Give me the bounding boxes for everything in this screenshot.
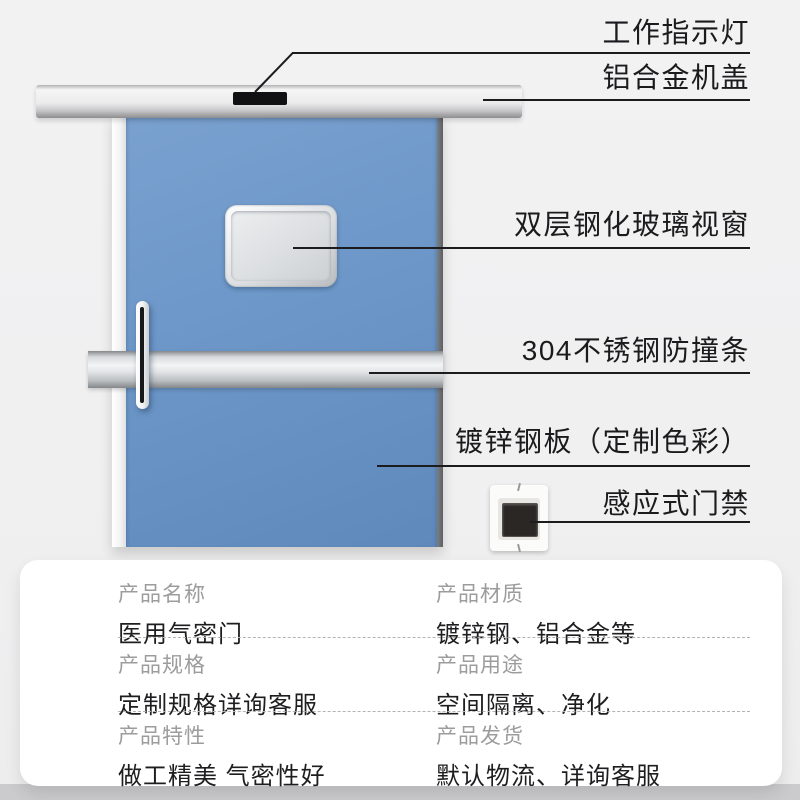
door-handle [136, 301, 149, 409]
spec-cell-product-feature: 产品特性 做工精美 气密性好 [20, 712, 436, 783]
access-device-wire-bottom [517, 544, 521, 552]
window-glass [231, 211, 331, 281]
door-face-steel-plate [126, 114, 437, 547]
callout-label-glass-window: 双层钢化玻璃视窗 [514, 208, 750, 242]
work-indicator-light [233, 92, 287, 105]
callout-line-steel-plate [377, 465, 750, 467]
callout-label-steel-plate: 镀锌钢板（定制色彩） [455, 425, 750, 459]
spec-cell-product-shipping: 产品发货 默认物流、详询客服 [436, 712, 782, 783]
door-right-edge [437, 114, 443, 547]
spec-card: 产品名称 医用气密门 产品材质 镀锌钢、铝合金等 产品规格 定制规格详询客服 产… [20, 560, 782, 786]
spec-cell-product-use: 产品用途 空间隔离、净化 [436, 641, 782, 712]
access-device-bezel [498, 498, 540, 540]
callout-line-indicator-light [292, 52, 750, 54]
door-left-edge [112, 114, 126, 547]
callout-line-glass-window [293, 247, 750, 249]
callout-label-aluminum-cover: 铝合金机盖 [602, 61, 750, 95]
access-device-reader [502, 503, 538, 537]
product-annotation-page: 工作指示灯 铝合金机盖 双层钢化玻璃视窗 304不锈钢防撞条 镀锌钢板（定制色彩… [0, 0, 800, 800]
spec-label: 产品规格 [118, 649, 436, 679]
access-device-wire-top [517, 483, 521, 491]
spec-value: 默认物流、详询客服 [436, 756, 782, 791]
spec-row-separator [118, 711, 750, 712]
spec-label: 产品发货 [436, 720, 782, 750]
door-handle-slot [140, 307, 144, 403]
access-control-device [490, 485, 548, 551]
door-panel [112, 114, 443, 547]
spec-label: 产品特性 [118, 720, 436, 750]
spec-label: 产品材质 [436, 578, 782, 608]
spec-cell-product-material: 产品材质 镀锌钢、铝合金等 [436, 570, 782, 641]
callout-line-bumper-strip [369, 372, 750, 374]
spec-value: 做工精美 气密性好 [118, 756, 436, 791]
callout-line-access-control [530, 521, 750, 523]
tempered-glass-window [225, 205, 337, 287]
spec-row-separator [118, 637, 750, 638]
callout-label-bumper-strip: 304不锈钢防撞条 [522, 334, 750, 368]
spec-cell-product-name: 产品名称 医用气密门 [20, 570, 436, 641]
spec-label: 产品名称 [118, 578, 436, 608]
callout-line-aluminum-cover [483, 99, 750, 101]
aluminum-track-cover [36, 85, 522, 118]
spec-cell-product-spec: 产品规格 定制规格详询客服 [20, 641, 436, 712]
callout-label-access-control: 感应式门禁 [602, 487, 750, 521]
callout-label-indicator-light: 工作指示灯 [602, 16, 750, 50]
spec-label: 产品用途 [436, 649, 782, 679]
